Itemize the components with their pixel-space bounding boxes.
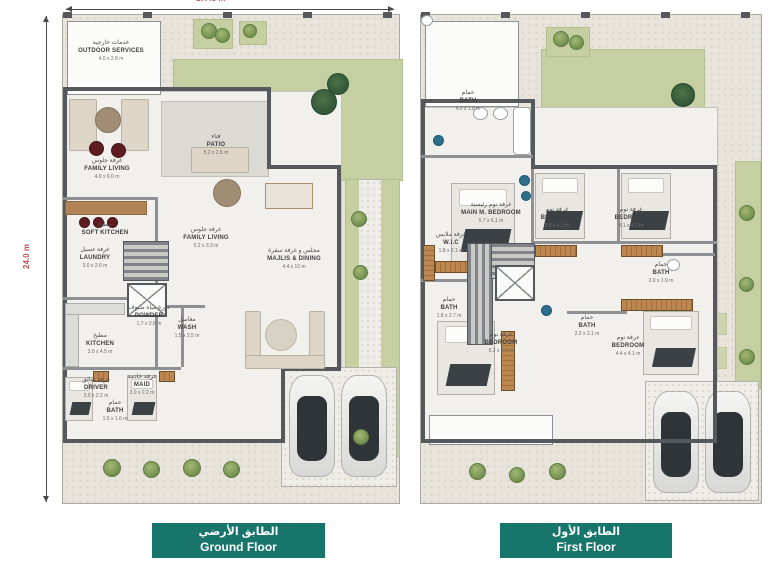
first-floor-plan: حمام BATH 4.0 x 1.8 m غرفة نوم رئيسية MA…: [420, 14, 762, 504]
bush: [553, 31, 569, 47]
wall: [337, 165, 341, 371]
bush: [509, 467, 525, 483]
vase: [541, 305, 552, 316]
room-label-bedroom-3: غرفة نوم BEDROOM 5.2 x 4.0 m: [485, 332, 518, 354]
room-label-patio: فناء PATIO 5.2 x 2.5 m: [204, 134, 229, 156]
room-label-powder: دورة مياه ضيوف POWDER 1.7 x 2.6 m: [128, 305, 169, 327]
wardrobe: [159, 371, 175, 382]
ground-floor-button[interactable]: الطابق الأرضي Ground Floor: [152, 523, 325, 558]
top-dimension-line: [66, 9, 394, 10]
round-rug: [265, 319, 297, 351]
bush: [353, 265, 368, 280]
wall: [63, 439, 285, 443]
bush: [549, 463, 566, 480]
kitchen-counter: [65, 201, 147, 215]
wall: [531, 165, 717, 169]
car: [289, 375, 335, 477]
bush: [243, 24, 257, 38]
top-dimension-text: 17.45 m: [196, 0, 225, 3]
sink: [421, 15, 433, 26]
elevator: [495, 265, 535, 301]
bed: [643, 311, 699, 375]
room-label-maid: غرفة خادمة MAID 3.0 x 2.2 m: [128, 374, 157, 396]
room-label-bath-gf: حمام BATH 1.5 x 1.6 m: [103, 400, 128, 422]
partition: [63, 367, 181, 370]
majlis-sofa: [309, 311, 325, 361]
bush: [569, 35, 584, 50]
room-label-majlis-dining: مجلس و غرفة سفرة MAJLIS & DINING 4.4 x 1…: [267, 248, 321, 270]
armchair: [111, 143, 126, 158]
majlis-sofa: [245, 355, 325, 369]
boundary-wall-posts: [63, 12, 399, 18]
wall: [63, 87, 271, 91]
car: [341, 375, 387, 477]
bush: [469, 463, 486, 480]
wic-wardrobe: [423, 245, 435, 281]
vase: [519, 175, 530, 186]
room-label-outdoor-services: خدمات خارجية OUTDOOR SERVICES 4.0 x 2.8 …: [78, 40, 144, 62]
room-label-family-living-1: غرفة جلوس FAMILY LIVING 4.0 x 6.0 m: [84, 158, 130, 180]
wall: [267, 87, 271, 169]
majlis-sofa: [245, 311, 261, 361]
room-label-wash: مغاسل WASH 1.5 x 2.5 m: [175, 317, 200, 339]
dining-table: [265, 183, 313, 209]
sofa: [121, 99, 149, 151]
wardrobe: [535, 245, 577, 257]
room-label-wic: غرفة ملابس W.I.C 1.8 x 2.1 m: [436, 232, 466, 254]
kitchen-cabinets: [65, 303, 125, 315]
bush: [351, 211, 367, 227]
floorplan-sheet: 17.45 m 24.0 m: [0, 0, 778, 564]
bush: [215, 28, 230, 43]
armchair: [89, 141, 104, 156]
room-label-family-living-2: غرفة جلوس FAMILY LIVING 5.2 x 3.3 m: [183, 227, 229, 249]
room-label-bath-lower: حمام BATH 2.2 x 2.1 m: [575, 315, 600, 337]
partition: [421, 155, 533, 158]
palm-tree: [327, 73, 349, 95]
first-floor-button[interactable]: الطابق الأول First Floor: [500, 523, 672, 558]
bush: [103, 459, 121, 477]
stairs: [467, 243, 493, 345]
wall: [281, 367, 285, 441]
bush: [739, 205, 755, 221]
bush: [739, 277, 754, 292]
room-label-bath-right: حمام BATH 2.9 x 1.9 m: [649, 262, 674, 284]
bush: [223, 461, 240, 478]
partition: [63, 197, 155, 200]
wardrobe: [621, 299, 693, 311]
wardrobe: [621, 245, 663, 257]
room-label-driver: غرفة سائق DRIVER 3.0 x 2.2 m: [82, 377, 110, 399]
room-label-bath-top: حمام BATH 4.0 x 1.8 m: [456, 90, 481, 112]
round-table: [95, 107, 121, 133]
bush: [353, 429, 369, 445]
room-label-laundry: غرفة غسيل LAUNDRY 3.0 x 2.0 m: [80, 247, 111, 269]
wall: [531, 99, 535, 169]
wall: [421, 439, 717, 443]
partition: [531, 169, 534, 244]
room-label-bedroom-2: غرفة نوم BEDROOM 4.1 x 4.2 m: [615, 207, 648, 229]
sink: [493, 107, 508, 120]
room-label-kitchen: مطبخ KITCHEN 3.0 x 4.5 m: [86, 333, 114, 355]
room-label-main-bedroom: غرفة نوم رئيسية MAIN M. BEDROOM 5.7 x 6.…: [461, 202, 521, 224]
wall: [713, 165, 717, 443]
bush: [143, 461, 160, 478]
vase: [521, 191, 531, 201]
room-label-bedroom-1: غرفة نوم BEDROOM 3.6 x 4.2 m: [541, 207, 574, 229]
palm-tree: [671, 83, 695, 107]
bush: [183, 459, 201, 477]
stairs: [123, 241, 169, 281]
room-label-bedroom-4: غرفة نوم BEDROOM 4.4 x 4.1 m: [612, 335, 645, 357]
room-label-bath-mid: حمام BATH 1.8 x 2.7 m: [437, 297, 462, 319]
bush: [739, 349, 755, 365]
vase: [433, 135, 444, 146]
round-table: [213, 179, 241, 207]
partition: [531, 241, 717, 244]
partition: [567, 311, 627, 314]
wall: [267, 165, 341, 169]
left-dimension-text: 24.0 m: [22, 244, 31, 269]
room-label-soft-kitchen: مطبخ SOFT KITCHEN: [82, 222, 129, 238]
ground-floor-plan: خدمات خارجية OUTDOOR SERVICES 4.0 x 2.8 …: [62, 14, 400, 504]
boundary-wall-posts: [421, 12, 761, 18]
left-dimension-line: [46, 16, 47, 502]
bathtub: [513, 107, 531, 155]
